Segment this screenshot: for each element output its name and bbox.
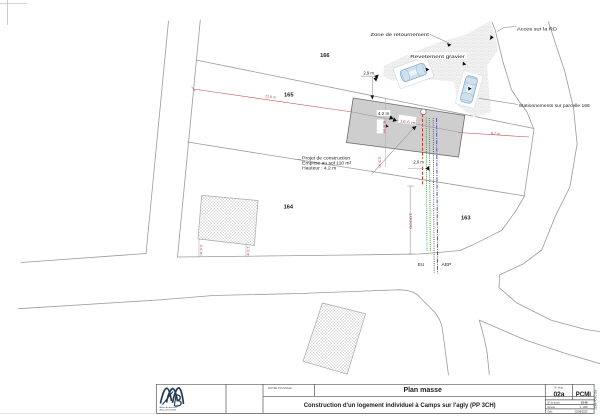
- svg-text:2.9 m: 2.9 m: [363, 71, 374, 76]
- svg-text:Plan masse: Plan masse: [403, 385, 442, 394]
- svg-text:22/08/2023: 22/08/2023: [575, 409, 589, 413]
- svg-text:02a: 02a: [554, 390, 566, 399]
- svg-text:10000: 10000: [408, 213, 412, 230]
- svg-text:164: 164: [284, 204, 294, 210]
- svg-text:N° du projet: N° du projet: [548, 401, 561, 404]
- svg-text:Hauteur : 4.2 m: Hauteur : 4.2 m: [302, 165, 336, 170]
- svg-text:165: 165: [284, 92, 294, 98]
- svg-text:1 : 200: 1 : 200: [580, 405, 588, 409]
- svg-text:Stationnements sur parcelle 16: Stationnements sur parcelle 166: [519, 103, 590, 108]
- svg-text:MAITRE D'OUVRAGE: MAITRE D'OUVRAGE: [268, 387, 292, 390]
- svg-text:4.2 m: 4.2 m: [378, 111, 390, 116]
- svg-text:Zone de retournement: Zone de retournement: [370, 32, 429, 37]
- svg-text:22 08: 22 08: [581, 400, 588, 404]
- svg-text:Alexandre BODIN: Alexandre BODIN: [160, 408, 177, 411]
- svg-text:Construction d'un logement ind: Construction d'un logement individuel à …: [304, 402, 496, 409]
- svg-text:163: 163: [461, 215, 471, 221]
- svg-text:166: 166: [320, 53, 330, 59]
- svg-text:2.9 m: 2.9 m: [413, 160, 424, 165]
- svg-text:2.6 m: 2.6 m: [199, 245, 203, 256]
- svg-text:PCMI: PCMI: [576, 390, 591, 399]
- svg-text:3.9 m: 3.9 m: [377, 157, 382, 169]
- svg-text:1.5 m: 1.5 m: [246, 246, 250, 257]
- svg-text:Date: Date: [548, 410, 554, 413]
- svg-text:8.7 m: 8.7 m: [491, 131, 500, 136]
- svg-text:22089-PCMI1-02a: 22089-PCMI1-02a: [595, 389, 598, 409]
- svg-text:Acces sur la RD: Acces sur la RD: [517, 27, 558, 32]
- svg-text:EU: EU: [418, 262, 425, 267]
- svg-text:6.6 m: 6.6 m: [382, 121, 387, 134]
- svg-text:AEP: AEP: [442, 262, 452, 267]
- svg-text:Echelle: Echelle: [548, 407, 556, 409]
- svg-text:Revetement gravier: Revetement gravier: [410, 54, 465, 59]
